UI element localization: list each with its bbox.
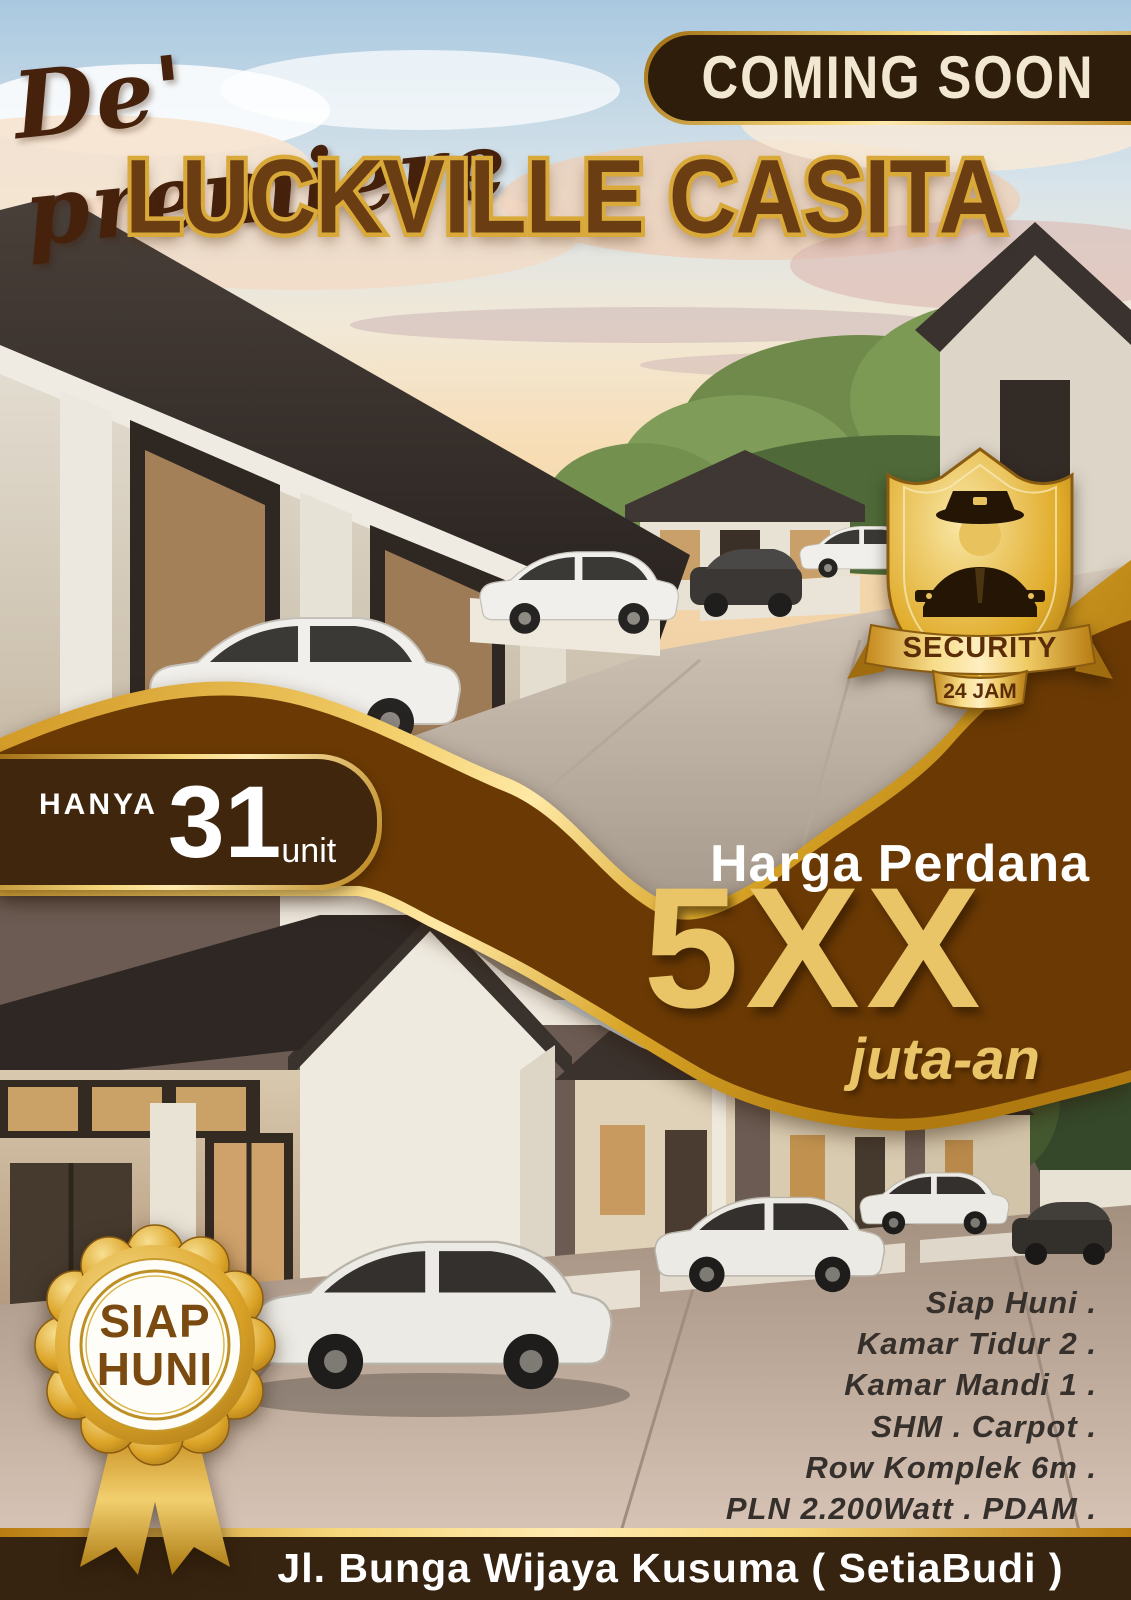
address-text: Jl. Bunga Wijaya Kusuma ( SetiaBudi ) bbox=[277, 1545, 1063, 1592]
units-count: 31 bbox=[168, 771, 281, 873]
units-prefix: HANYA bbox=[39, 788, 158, 822]
feature-item: SHM . Carpot . bbox=[726, 1406, 1097, 1447]
coming-soon-label: COMING SOON bbox=[702, 43, 1095, 112]
poster-luckville-casita: De' premiere COMING SOON LUCKVILLE CASIT… bbox=[0, 0, 1131, 1600]
ready-badge-word1: SIAP bbox=[99, 1295, 210, 1347]
units-banner: HANYA 31 unit bbox=[0, 754, 382, 890]
siap-huni-rosette: SIAP HUNI bbox=[20, 1215, 300, 1595]
feature-item: Kamar Tidur 2 . bbox=[726, 1323, 1097, 1364]
security-line2: 24 JAM bbox=[943, 680, 1017, 703]
security-line1: SECURITY bbox=[903, 632, 1058, 664]
units-banner-inner: HANYA 31 unit bbox=[0, 759, 377, 885]
coming-soon-badge: COMING SOON bbox=[644, 31, 1131, 125]
coming-soon-badge-inner: COMING SOON bbox=[648, 35, 1131, 121]
units-suffix: unit bbox=[281, 832, 336, 871]
feature-list: Siap Huni . Kamar Tidur 2 . Kamar Mandi … bbox=[726, 1282, 1097, 1529]
price-value: 5XX bbox=[580, 862, 1050, 1034]
feature-item: Siap Huni . bbox=[726, 1282, 1097, 1323]
ready-badge-word2: HUNI bbox=[97, 1343, 213, 1395]
feature-item: PLN 2.200Watt . PDAM . bbox=[726, 1488, 1097, 1529]
feature-item: Row Komplek 6m . bbox=[726, 1447, 1097, 1488]
feature-item: Kamar Mandi 1 . bbox=[726, 1364, 1097, 1405]
security-badge: SECURITY 24 JAM bbox=[845, 435, 1115, 725]
price-unit: juta-an bbox=[700, 1026, 1040, 1093]
project-title-text: LUCKVILLE CASITA bbox=[0, 136, 1131, 257]
project-title: LUCKVILLE CASITA LUCKVILLE CASITA bbox=[0, 136, 1131, 256]
